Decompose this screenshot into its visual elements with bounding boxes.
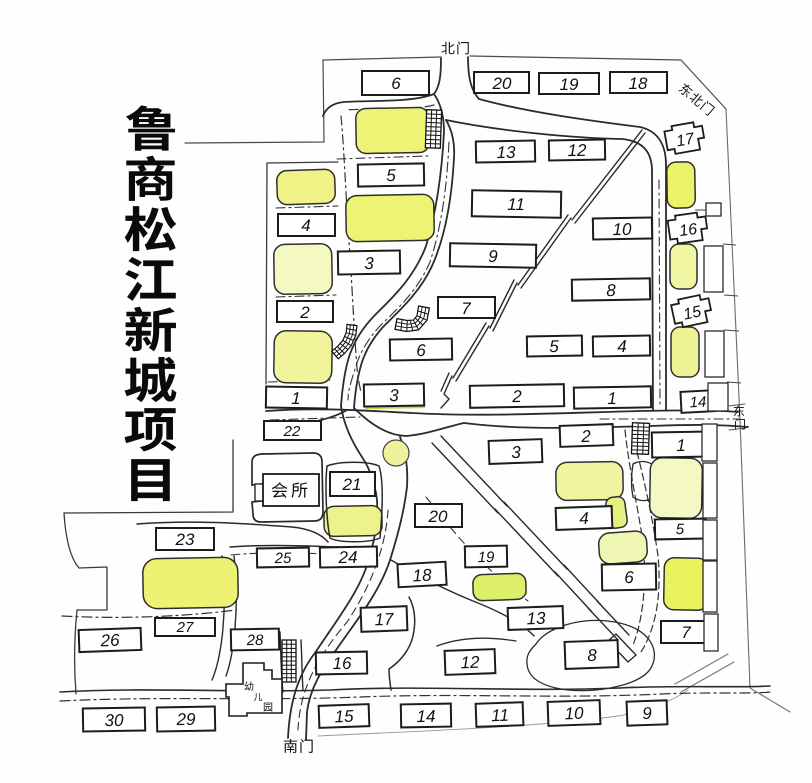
svg-text:10: 10 <box>612 220 632 239</box>
svg-text:6: 6 <box>416 341 426 360</box>
svg-text:5: 5 <box>386 166 396 185</box>
svg-text:1: 1 <box>291 389 301 408</box>
svg-text:30: 30 <box>104 711 124 730</box>
svg-text:8: 8 <box>606 281 616 300</box>
svg-text:9: 9 <box>642 704 653 723</box>
svg-text:19: 19 <box>560 75 579 94</box>
svg-text:24: 24 <box>337 548 357 567</box>
svg-text:2: 2 <box>511 387 522 406</box>
svg-text:5: 5 <box>549 337 559 356</box>
svg-text:18: 18 <box>412 565 432 585</box>
svg-text:2: 2 <box>299 303 310 322</box>
svg-text:3: 3 <box>511 443 522 462</box>
svg-text:4: 4 <box>617 337 627 356</box>
svg-text:3: 3 <box>364 254 374 273</box>
svg-text:21: 21 <box>342 475 362 494</box>
svg-text:6: 6 <box>624 568 634 587</box>
svg-text:4: 4 <box>301 216 310 235</box>
svg-text:13: 13 <box>526 609 546 629</box>
svg-text:11: 11 <box>507 195 525 214</box>
svg-text:1: 1 <box>676 436 686 455</box>
svg-text:12: 12 <box>567 141 587 160</box>
svg-text:5: 5 <box>676 521 685 538</box>
svg-text:4: 4 <box>579 509 589 528</box>
svg-text:1: 1 <box>607 389 617 408</box>
svg-text:16: 16 <box>332 654 352 673</box>
svg-text:9: 9 <box>488 247 498 266</box>
svg-text:18: 18 <box>629 74 648 93</box>
svg-text:19: 19 <box>478 549 496 566</box>
svg-text:7: 7 <box>681 623 691 642</box>
svg-text:12: 12 <box>460 653 480 673</box>
svg-text:10: 10 <box>564 704 584 724</box>
svg-text:28: 28 <box>246 632 265 649</box>
svg-text:15: 15 <box>334 707 354 727</box>
svg-text:3: 3 <box>389 386 399 405</box>
svg-text:23: 23 <box>175 530 195 549</box>
svg-text:20: 20 <box>428 507 448 526</box>
svg-text:14: 14 <box>689 394 707 412</box>
svg-text:11: 11 <box>491 706 509 726</box>
svg-text:17: 17 <box>374 610 394 630</box>
svg-text:15: 15 <box>682 303 703 323</box>
svg-text:27: 27 <box>176 619 194 636</box>
svg-text:6: 6 <box>391 74 401 93</box>
svg-text:25: 25 <box>274 550 293 567</box>
svg-text:2: 2 <box>580 427 592 446</box>
svg-text:29: 29 <box>175 710 196 729</box>
svg-text:26: 26 <box>99 631 120 651</box>
svg-text:20: 20 <box>492 74 512 93</box>
svg-text:13: 13 <box>496 143 516 162</box>
svg-text:14: 14 <box>416 707 435 726</box>
svg-text:22: 22 <box>283 423 301 440</box>
svg-text:7: 7 <box>461 299 471 318</box>
svg-text:16: 16 <box>678 221 698 240</box>
svg-text:8: 8 <box>587 646 598 665</box>
